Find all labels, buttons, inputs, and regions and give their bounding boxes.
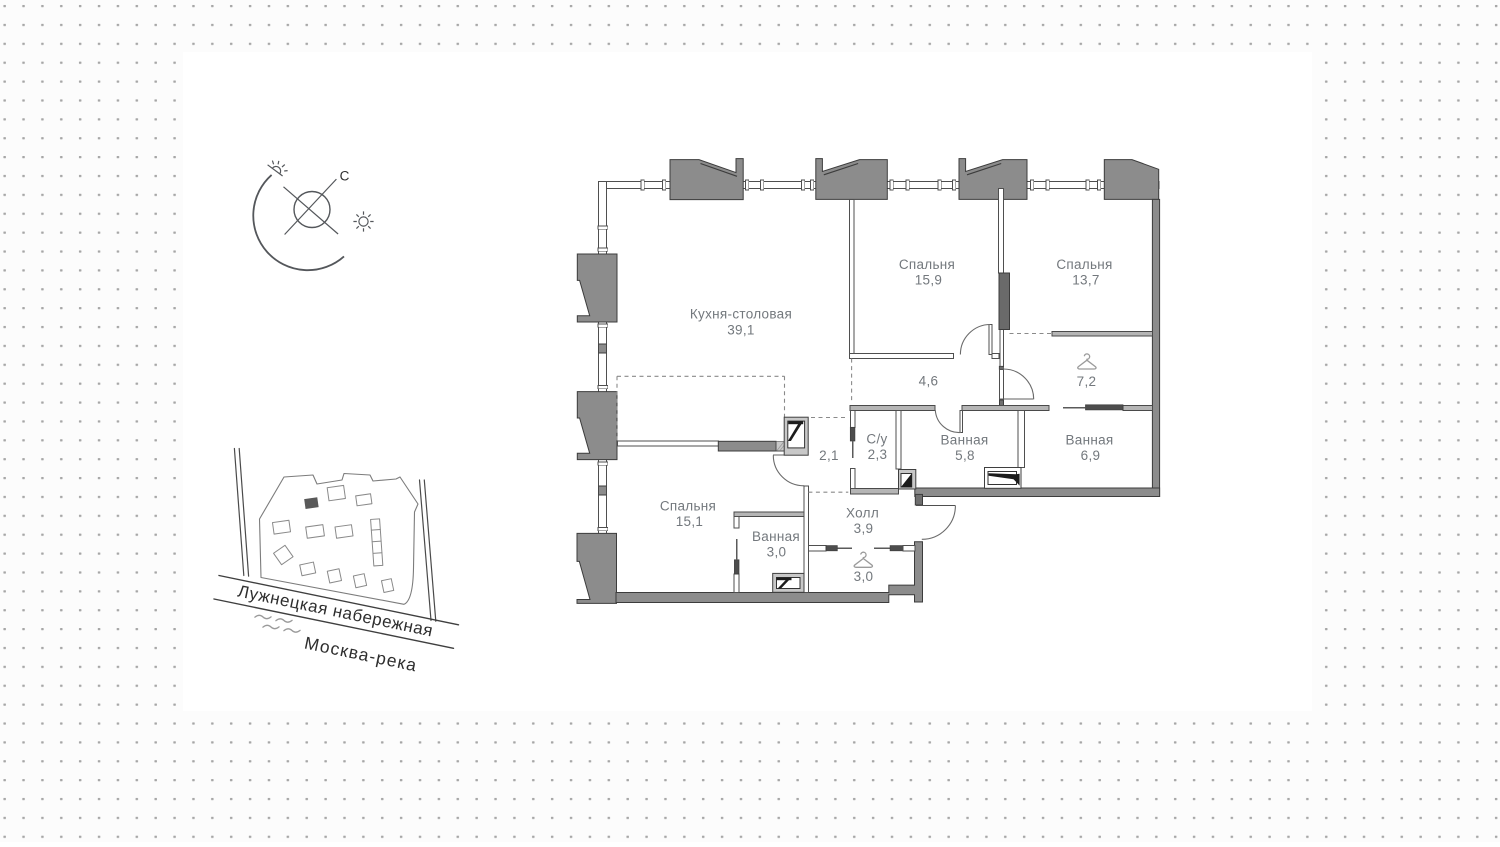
svg-text:Спальня: Спальня — [660, 499, 716, 514]
svg-text:Холл: Холл — [846, 506, 879, 521]
svg-text:7,2: 7,2 — [1077, 374, 1097, 389]
svg-text:4,6: 4,6 — [919, 374, 939, 389]
svg-text:Ванная: Ванная — [940, 433, 988, 448]
svg-text:5,8: 5,8 — [955, 448, 975, 463]
svg-text:6,9: 6,9 — [1081, 448, 1101, 463]
svg-text:2,1: 2,1 — [819, 448, 839, 463]
svg-text:39,1: 39,1 — [727, 323, 754, 338]
svg-text:2,3: 2,3 — [868, 447, 888, 462]
svg-text:Ванная: Ванная — [1065, 433, 1113, 448]
svg-text:3,0: 3,0 — [854, 569, 874, 584]
svg-text:3,9: 3,9 — [854, 521, 874, 536]
svg-text:13,7: 13,7 — [1072, 272, 1099, 287]
svg-text:С/у: С/у — [866, 432, 887, 447]
svg-text:3,0: 3,0 — [767, 545, 787, 560]
svg-text:Спальня: Спальня — [1056, 257, 1112, 272]
svg-text:15,1: 15,1 — [676, 514, 703, 529]
svg-text:Кухня-столовая: Кухня-столовая — [690, 307, 792, 322]
svg-text:Спальня: Спальня — [899, 257, 955, 272]
svg-text:Ванная: Ванная — [752, 529, 800, 544]
svg-text:С: С — [340, 169, 350, 184]
svg-text:15,9: 15,9 — [915, 272, 942, 287]
